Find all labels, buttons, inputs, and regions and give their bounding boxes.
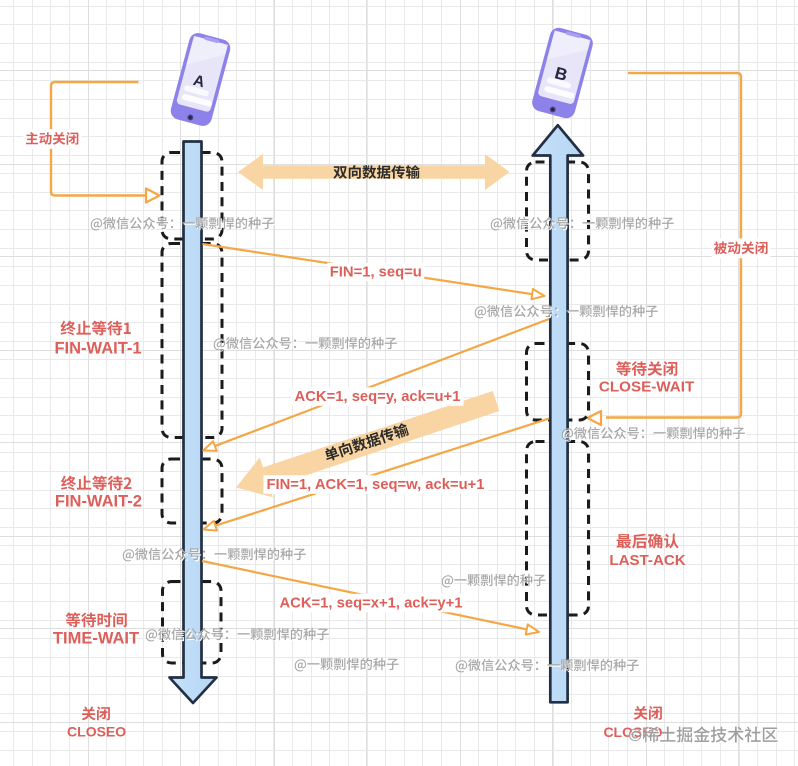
- svg-text:ACK=1, seq=y, ack=u+1: ACK=1, seq=y, ack=u+1: [295, 389, 461, 405]
- svg-text:FIN=1, ACK=1, seq=w, ack=u+1: FIN=1, ACK=1, seq=w, ack=u+1: [266, 477, 484, 493]
- svg-text:CLOSE-WAIT: CLOSE-WAIT: [599, 378, 695, 395]
- svg-text:TIME-WAIT: TIME-WAIT: [53, 630, 139, 648]
- svg-text:FIN-WAIT-2: FIN-WAIT-2: [55, 493, 142, 511]
- svg-text:LAST-ACK: LAST-ACK: [609, 552, 685, 569]
- svg-text:FIN=1, seq=u: FIN=1, seq=u: [330, 265, 422, 281]
- svg-text:FIN-WAIT-1: FIN-WAIT-1: [54, 340, 141, 358]
- svg-text:CLOSEO: CLOSEO: [67, 724, 126, 740]
- svg-text:ACK=1, seq=x+1, ack=y+1: ACK=1, seq=x+1, ack=y+1: [279, 596, 462, 612]
